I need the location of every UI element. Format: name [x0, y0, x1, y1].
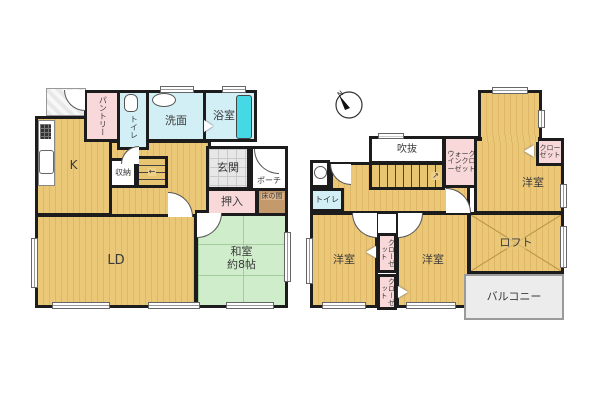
room-tokonoma: 床の間 [256, 188, 288, 216]
window [538, 110, 545, 128]
toilet-icon [124, 94, 138, 112]
oshiire-label: 押入 [221, 196, 243, 209]
japanese-room-size-label: 約8帖 [227, 259, 256, 272]
closet-upper-label: クローゼット [380, 236, 395, 270]
window [560, 184, 567, 208]
bedroom-left-label: 洋室 [333, 254, 355, 267]
open-void-label: 吹抜 [397, 144, 417, 156]
pantry-label: パントリー [98, 96, 107, 136]
room-living-dining: LD [35, 214, 197, 308]
closet-door-triangle [366, 246, 376, 258]
bedroom-main-label: 洋室 [522, 177, 544, 190]
room-toilet-2f: トイレ [310, 188, 344, 212]
stairs-direction-arrow-2f: ↗ [431, 172, 440, 181]
window [306, 238, 313, 284]
window [222, 86, 246, 93]
closet-main-label: クローゼット [539, 145, 561, 160]
porch-label: ポーチ [257, 177, 281, 186]
room-entrance: 玄関 [206, 146, 250, 190]
entrance-label: 玄関 [217, 162, 239, 175]
tokonoma-label: 床の間 [261, 193, 284, 200]
compass-icon: N [334, 90, 364, 120]
bathtub-icon [236, 95, 252, 139]
washstand-icon [152, 93, 176, 107]
room-closet-lower: クローゼット [377, 274, 397, 310]
toilet-1f-label: トイレ [129, 115, 138, 139]
closet-door-triangle [524, 145, 534, 157]
floor-plan-image: K パントリー トイレ 洗面 浴室 収納 ← 玄関 [0, 0, 600, 400]
window [406, 302, 456, 309]
kitchen-label: K [70, 159, 78, 173]
window [284, 232, 291, 282]
washroom-label: 洗面 [165, 115, 187, 128]
closet-lower-label: クローゼット [380, 277, 395, 307]
room-open-void: 吹抜 [369, 136, 445, 164]
storage-label: 収納 [115, 169, 131, 178]
stairs-1f: ← [136, 156, 168, 188]
loft-label: ロフト [500, 237, 533, 250]
walk-in-closet-label: ウォークインクローゼット [446, 151, 477, 173]
room-bedroom-main-upper [478, 90, 542, 140]
balcony-label: バルコニー [487, 291, 542, 304]
room-closet-upper: クローゼット [377, 233, 397, 273]
living-dining-label: LD [107, 254, 124, 269]
bedroom-center-label: 洋室 [422, 254, 444, 267]
room-oshiire: 押入 [206, 188, 258, 216]
room-loft: ロフト [468, 212, 564, 274]
stove-icon [40, 124, 51, 139]
closet-door-triangle [398, 286, 408, 298]
stairs-direction-arrow-1f: ← [148, 168, 157, 177]
toilet-2f-label: トイレ [315, 196, 339, 205]
stairs-2f: ↗ [369, 162, 445, 190]
window [52, 302, 110, 309]
room-pantry: パントリー [84, 90, 120, 142]
wall-opening-patch [482, 135, 538, 142]
window [160, 86, 194, 93]
window [492, 87, 528, 94]
bathroom-door-triangle [204, 120, 213, 132]
window [148, 302, 200, 309]
room-balcony: バルコニー [464, 274, 564, 320]
window [560, 226, 567, 268]
room-closet-main: クローゼット [536, 138, 564, 166]
window [31, 238, 38, 288]
bathroom-label: 浴室 [213, 110, 235, 123]
kitchen-sink-icon [39, 150, 54, 174]
window [322, 302, 366, 309]
window [378, 133, 404, 139]
window [226, 302, 274, 309]
washbasin-icon [314, 166, 327, 179]
